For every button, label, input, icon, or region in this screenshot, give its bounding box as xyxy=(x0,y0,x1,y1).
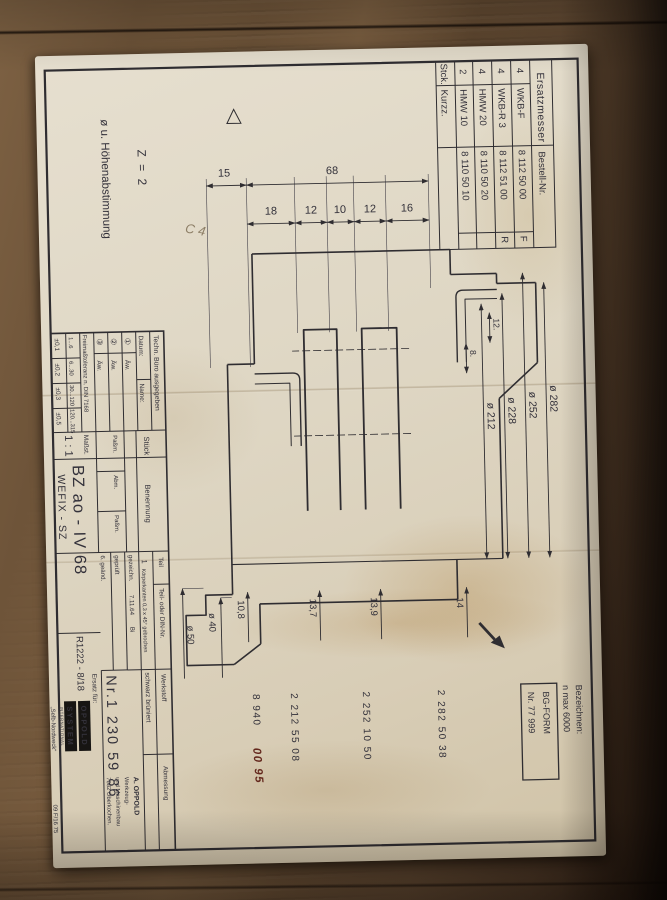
gezeichnet-label: gezeichn. xyxy=(127,555,135,582)
teil-label: Teil xyxy=(157,557,164,567)
rev-1: ① xyxy=(123,338,132,345)
z-note: Z = 2 xyxy=(135,149,150,187)
geaendert-label: 6. geänd. xyxy=(99,555,107,581)
tol-1: ±0,1 xyxy=(53,338,60,351)
bg-form: BG-FORM xyxy=(541,691,552,734)
dia-228: ø 228 xyxy=(505,397,518,424)
rev-3: ③ xyxy=(95,338,104,345)
massstab-label: Maßst. xyxy=(82,435,89,455)
tol-4: ±0,5 xyxy=(54,412,61,425)
dimension-chains: 68 15 16 12 10 12 18 xyxy=(206,163,432,368)
aew-1: Äw. xyxy=(123,360,131,371)
row-nr: 8 110 50 10 xyxy=(459,151,471,201)
col-kurzz: Kurzz. xyxy=(438,89,450,116)
aew-3: Äw. xyxy=(95,360,103,371)
row-kurzz: HMW 10 xyxy=(457,89,469,126)
werkstoff-value: schwarz brüniert xyxy=(143,672,151,722)
dim-16: 16 xyxy=(401,202,414,214)
dim-13-7: 13,7 xyxy=(307,599,318,618)
oppold-logo: OPPOLD SYSTEM INTERNATIONAL xyxy=(59,701,91,752)
row-nr: 8 112 50 00 xyxy=(516,150,528,200)
dim-12b: 12 xyxy=(305,205,318,217)
col-stck: Stck. xyxy=(438,63,449,84)
order-number: 2 282 50 38 xyxy=(435,690,448,760)
dim-18: 18 xyxy=(265,205,278,217)
abm-label: Abm. xyxy=(112,475,118,489)
order-number: 8 940 xyxy=(250,694,262,727)
height-note: ø u. Höhenabstimmung xyxy=(98,119,113,239)
dim-12: 12 xyxy=(364,203,377,215)
photo-background: Ersatzmesser Bestell-Nr. 4 WKB-F 8 112 5… xyxy=(0,0,667,900)
part-code: BZ ao - IV 68 xyxy=(69,465,89,576)
bg-form-nr: Nr. 77 999 xyxy=(526,692,537,734)
row-nr: 8 112 51 00 xyxy=(497,150,509,200)
passm-1: Paßm. xyxy=(111,435,117,453)
footer-code: 09 F/16 75 xyxy=(51,805,58,834)
dim-10-8: 10,8 xyxy=(235,600,246,619)
row-kurzz: WKB-F xyxy=(514,88,526,119)
dim-10: 10 xyxy=(334,204,347,216)
logo-international: INTERNATIONAL xyxy=(59,707,65,747)
bezeichnen-label: Bezeichnen: xyxy=(574,685,585,735)
drawing-frame xyxy=(45,59,596,853)
company-line: Werkzeug- xyxy=(123,777,130,805)
passm-2: Paßm. xyxy=(113,515,119,533)
height-dimensions: 14 13,9 13,7 10,8 xyxy=(235,587,468,642)
dia-40: ø 40 xyxy=(206,613,217,632)
geprueft-label: geprüft xyxy=(113,555,120,575)
name-label: Name: xyxy=(138,383,145,402)
diameter-dimensions: ø 282 ø 252 ø 228 ø 212 12. 8. xyxy=(464,272,562,559)
dim-8-small: 8. xyxy=(468,350,478,357)
dia-212: ø 212 xyxy=(484,402,497,429)
bezeichnung-block: Bezeichnen: n max 6000 BG-FORM Nr. 77 99… xyxy=(521,683,586,780)
row-stck: 4 xyxy=(476,69,487,75)
logo-oppold: OPPOLD xyxy=(79,706,89,747)
row-kurzz: WKB-R 3 xyxy=(495,88,507,128)
rev-2: ② xyxy=(109,338,118,345)
row-nr: 8 110 50 20 xyxy=(478,151,490,201)
werkstoff-label: Werkstoff xyxy=(159,674,167,702)
ref-number: R1222 - 8/18 xyxy=(74,636,86,691)
aew-2: Äw. xyxy=(109,360,117,371)
finish-triangle-symbol xyxy=(227,109,241,123)
ersatzmesser-table: Ersatzmesser Bestell-Nr. 4 WKB-F 8 112 5… xyxy=(436,59,556,250)
direction-arrow xyxy=(479,622,505,649)
order-number: 2 212 55 08 xyxy=(288,693,301,763)
row-mark: F xyxy=(518,236,529,242)
pencil-mark: C 4 xyxy=(184,220,207,238)
part-name: WEFIX - SZ xyxy=(55,474,68,540)
abmessung-label: Abmessung xyxy=(161,766,169,801)
datum-label: Datum: xyxy=(137,335,144,356)
range-3: 30...120 xyxy=(68,385,74,406)
dia-252: ø 252 xyxy=(526,392,539,419)
col-bestell: Bestell-Nr. xyxy=(536,151,548,195)
teil-value: 1 xyxy=(140,559,149,563)
row-stck: 2 xyxy=(457,69,468,75)
row-stck: 4 xyxy=(514,68,525,74)
order-number: 2 252 10 50 xyxy=(360,691,373,761)
order-numbers: 2 282 50 38 2 252 10 50 2 212 55 08 8 94… xyxy=(249,690,448,785)
logo-system: SYSTEM xyxy=(65,706,75,746)
drawing-number: Nr.1 230 59 86 xyxy=(102,675,121,798)
dim-68: 68 xyxy=(326,165,339,177)
tol-2: ±0,2 xyxy=(53,363,60,376)
dim-12-small: 12. xyxy=(491,318,501,330)
title-block: Techn. Büro ausgegeben Datum: Name: ① Äw… xyxy=(51,331,176,852)
tol-3: ±0,3 xyxy=(54,387,61,400)
handwritten-number: 00 95 xyxy=(250,747,265,784)
gezeichnet-name: Bi xyxy=(128,627,135,633)
part-cross-section xyxy=(178,248,544,666)
dim-15: 15 xyxy=(218,167,231,179)
teil-din-label: Teil- oder DIN-Nr. xyxy=(157,588,165,639)
dia-282: ø 282 xyxy=(547,385,560,412)
range-4: 120...315 xyxy=(68,409,75,433)
wood-plank-gap xyxy=(0,880,667,892)
technical-drawing-svg: Ersatzmesser Bestell-Nr. 4 WKB-F 8 112 5… xyxy=(34,44,605,866)
company-line: A. OPPOLD xyxy=(132,777,140,816)
row-mark: R xyxy=(499,236,510,243)
drawing-sheet: Ersatzmesser Bestell-Nr. 4 WKB-F 8 112 5… xyxy=(35,44,606,868)
rotated-drawing-container: Ersatzmesser Bestell-Nr. 4 WKB-F 8 112 5… xyxy=(34,44,605,866)
wood-plank-gap xyxy=(0,19,667,35)
row-kurzz: HMW 20 xyxy=(476,89,488,126)
stueck-label: Stück xyxy=(142,436,151,455)
range-2: 6...30 xyxy=(67,361,73,376)
footer-mark: „Selb-Nordweck“ xyxy=(49,707,56,752)
gezeichnet-datum: 7.11.64 xyxy=(128,595,135,616)
koerperkanten: Körperkanten 0,3 x 45° gebrochen xyxy=(140,568,148,652)
form-footer: „Selb-Nordweck“ 09 F/16 75 xyxy=(49,707,58,834)
n-max-value: n max 6000 xyxy=(561,685,572,732)
benennung-label: Benennung xyxy=(143,484,153,523)
range-1: 1...6 xyxy=(67,337,73,348)
massstab-value: 1 : 1 xyxy=(62,435,74,457)
techn-buero: Techn. Büro ausgegeben xyxy=(152,335,161,411)
ersatz-label: Ersatz für: xyxy=(90,674,98,704)
dim-13-9: 13,9 xyxy=(368,597,379,616)
table-title: Ersatzmesser xyxy=(534,72,548,142)
row-stck: 4 xyxy=(495,68,506,74)
freimass: Freimaßtoleranz n. DIN 7168 xyxy=(81,335,89,413)
